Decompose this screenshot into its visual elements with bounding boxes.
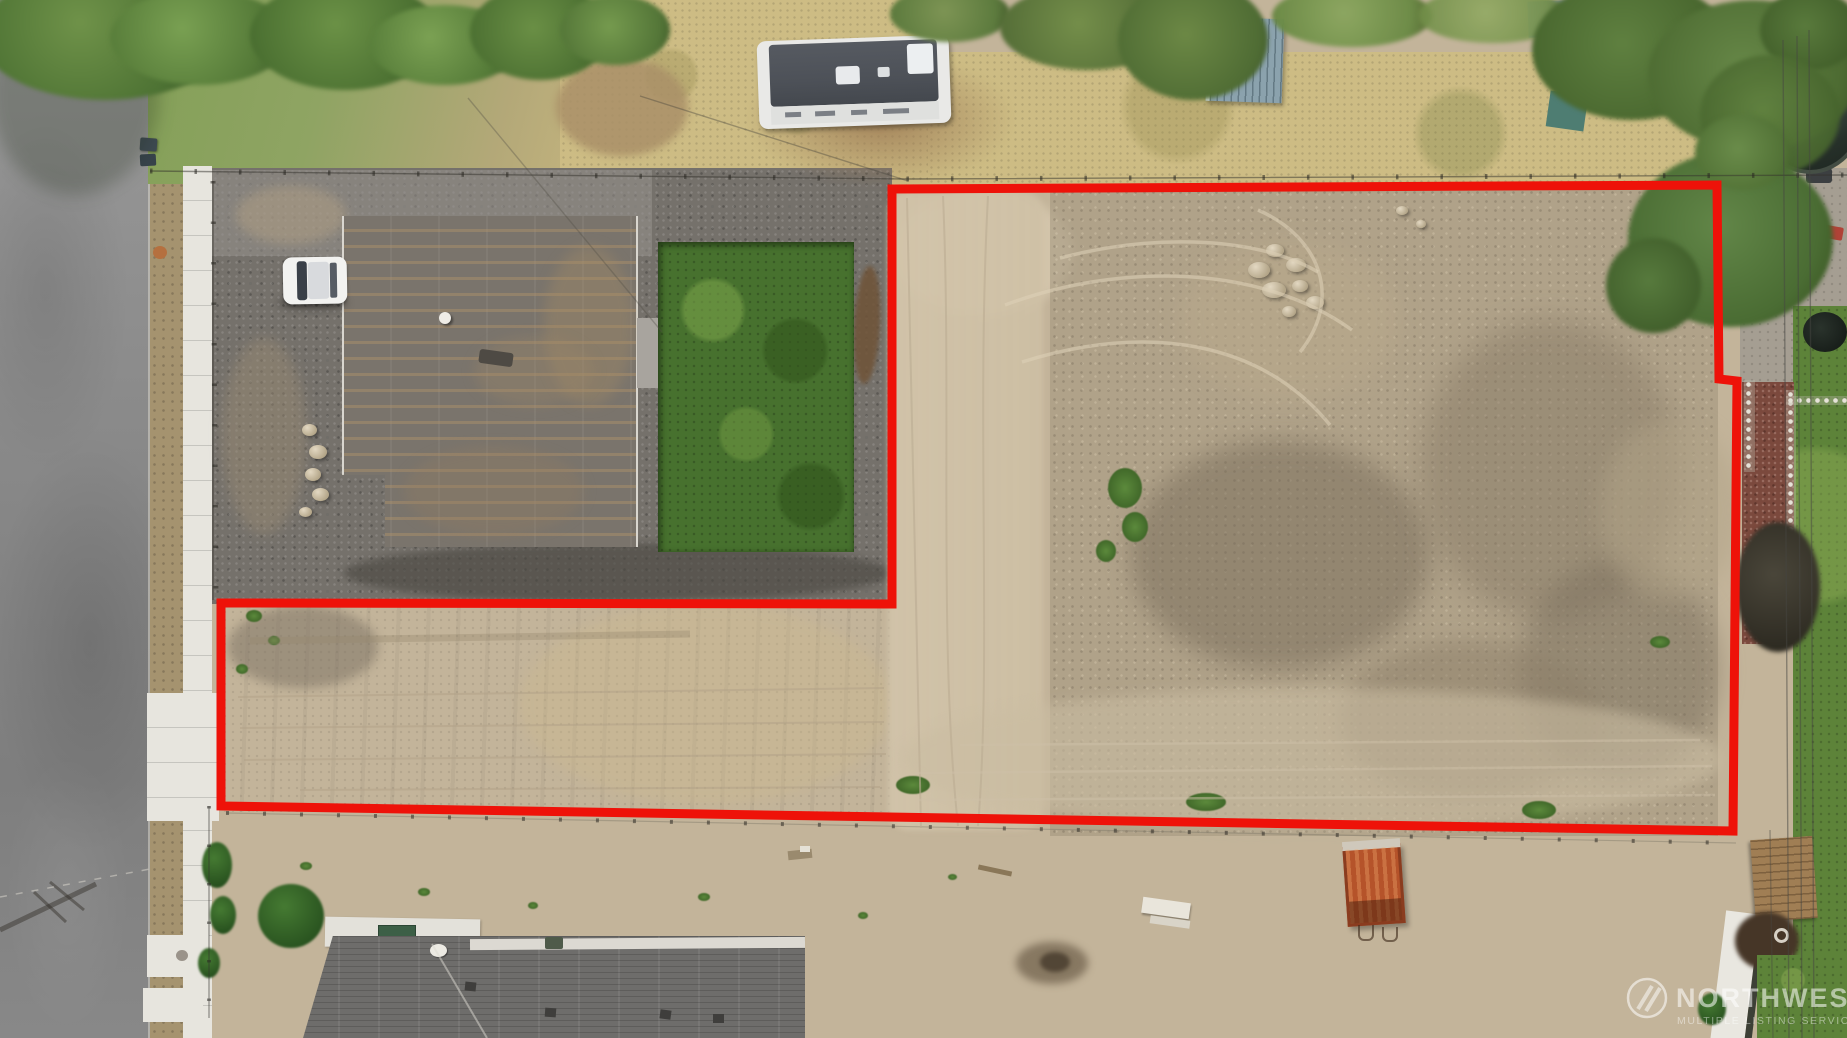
watermark-line2: MULTIPLE LISTING SERVICE bbox=[1677, 1015, 1847, 1027]
mls-watermark: NORTHWEST MULTIPLE LISTING SERVICE bbox=[1628, 979, 1847, 1027]
tire-tracks bbox=[1005, 210, 1352, 425]
line-overlay: NORTHWEST MULTIPLE LISTING SERVICE bbox=[0, 0, 1847, 1038]
parcel-bottom-track-lines bbox=[915, 740, 1715, 800]
boundary-polygon bbox=[221, 185, 1737, 831]
watermark-line1: NORTHWEST bbox=[1676, 983, 1847, 1013]
aerial-photo: NORTHWEST MULTIPLE LISTING SERVICE bbox=[0, 0, 1847, 1038]
strip-track-lines bbox=[238, 634, 886, 790]
chain-link-fences bbox=[150, 171, 1847, 1018]
pole-shadow bbox=[0, 882, 96, 930]
roof-valley-seam bbox=[432, 944, 487, 1038]
track-swath-lines bbox=[907, 196, 988, 828]
